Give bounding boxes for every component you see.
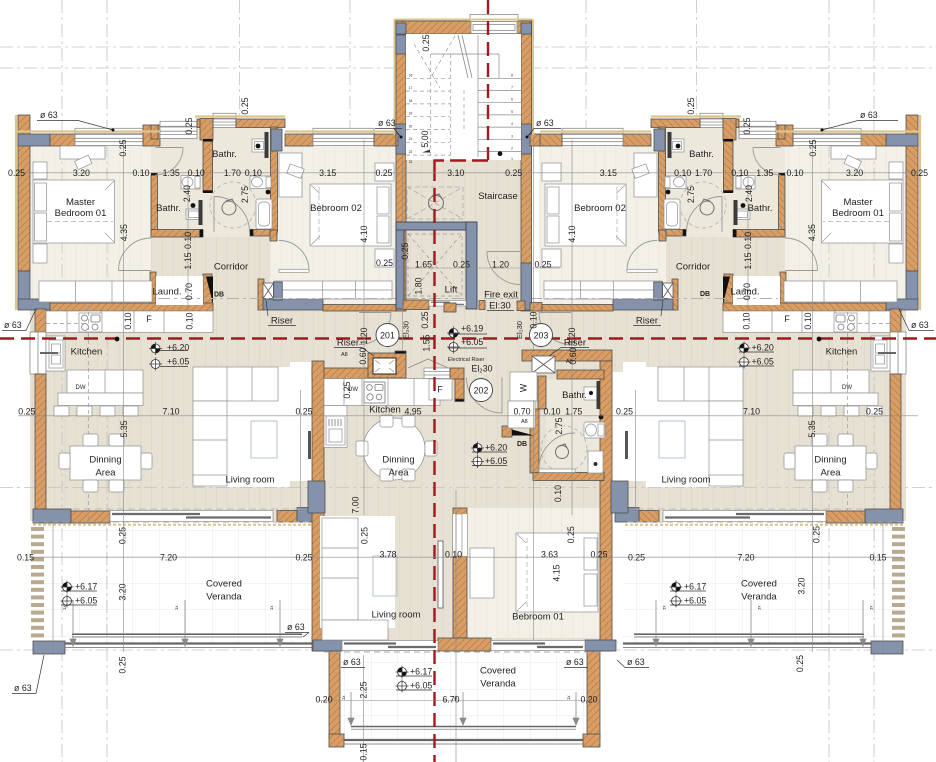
svg-text:7.20: 7.20 (737, 553, 754, 563)
svg-text:2.75: 2.75 (686, 186, 696, 203)
svg-text:+6.05: +6.05 (410, 681, 432, 691)
svg-text:17: 17 (409, 86, 413, 90)
svg-text:2: 2 (511, 147, 513, 151)
svg-text:+6.05: +6.05 (167, 357, 189, 367)
svg-text:1.20: 1.20 (492, 260, 509, 270)
svg-text:0.25: 0.25 (240, 97, 250, 114)
svg-text:+6.17: +6.17 (684, 582, 706, 592)
svg-text:Kitchen: Kitchen (71, 347, 103, 358)
svg-text:1.70: 1.70 (224, 168, 241, 178)
svg-text:0.25: 0.25 (8, 168, 25, 178)
svg-text:18: 18 (409, 99, 413, 103)
svg-text:El₂30: El₂30 (402, 321, 411, 339)
svg-text:1.35: 1.35 (756, 168, 773, 178)
svg-text:1.70: 1.70 (695, 168, 712, 178)
svg-text:Veranda: Veranda (480, 679, 516, 690)
svg-text:20: 20 (409, 124, 413, 128)
svg-text:F: F (784, 314, 790, 324)
svg-text:Bedroom 01: Bedroom 01 (55, 208, 107, 219)
svg-text:Kitchen: Kitchen (369, 405, 401, 416)
svg-text:8: 8 (511, 74, 513, 78)
svg-text:1.75: 1.75 (565, 407, 582, 417)
svg-text:1.65: 1.65 (415, 260, 432, 270)
svg-text:Area: Area (95, 468, 116, 479)
svg-text:0.10: 0.10 (529, 311, 539, 328)
svg-text:+6.17: +6.17 (75, 582, 97, 592)
svg-text:+6.05: +6.05 (485, 456, 507, 466)
svg-text:Corridor: Corridor (214, 262, 248, 273)
svg-text:+6.05: +6.05 (752, 357, 774, 367)
svg-text:Master: Master (843, 197, 872, 208)
svg-text:1.55: 1.55 (422, 334, 432, 351)
svg-text:DB: DB (214, 292, 224, 299)
svg-text:3.15: 3.15 (319, 168, 336, 178)
svg-text:5.35: 5.35 (807, 420, 817, 437)
svg-text:23: 23 (409, 160, 413, 164)
svg-text:0.25: 0.25 (342, 381, 352, 398)
svg-text:Kitchen: Kitchen (826, 347, 858, 358)
svg-text:3.63: 3.63 (541, 550, 558, 560)
svg-text:0.70: 0.70 (742, 283, 752, 300)
svg-text:Lift: Lift (445, 285, 458, 296)
svg-text:1: 1 (511, 157, 513, 161)
svg-text:Dinning: Dinning (814, 455, 846, 466)
svg-text:0.25: 0.25 (566, 526, 576, 543)
svg-text:16: 16 (409, 74, 413, 78)
svg-text:3.10: 3.10 (447, 168, 464, 178)
svg-text:0.25: 0.25 (911, 168, 928, 178)
svg-text:Dinning: Dinning (89, 455, 121, 466)
svg-text:3.78: 3.78 (379, 550, 396, 560)
svg-text:0.10: 0.10 (188, 168, 205, 178)
svg-text:Area: Area (388, 468, 409, 479)
svg-text:1.20: 1.20 (359, 327, 369, 344)
svg-text:+6.20: +6.20 (167, 343, 189, 353)
svg-text:0.25: 0.25 (184, 117, 194, 134)
svg-text:3.20: 3.20 (846, 168, 863, 178)
svg-text:5.35: 5.35 (119, 420, 129, 437)
svg-text:19: 19 (409, 112, 413, 116)
svg-text:DW: DW (76, 385, 86, 391)
svg-text:Living room: Living room (661, 475, 710, 486)
svg-text:2.75: 2.75 (554, 417, 564, 434)
svg-text:Staircase: Staircase (478, 191, 518, 202)
svg-text:0.25: 0.25 (375, 168, 392, 178)
svg-text:0.25: 0.25 (505, 168, 522, 178)
svg-text:0.10: 0.10 (553, 485, 563, 502)
svg-text:2.40: 2.40 (744, 185, 754, 202)
svg-text:4.35: 4.35 (807, 224, 817, 241)
svg-text:0.10: 0.10 (803, 312, 813, 329)
svg-text:Riser: Riser (337, 338, 359, 349)
svg-text:+6.05: +6.05 (684, 596, 706, 606)
svg-text:0.10: 0.10 (731, 168, 748, 178)
svg-text:Electrical Riser: Electrical Riser (448, 357, 485, 363)
svg-text:4.15: 4.15 (552, 564, 562, 581)
svg-text:Master: Master (66, 197, 95, 208)
svg-text:Bedroom 01: Bedroom 01 (832, 208, 884, 219)
svg-text:5.00: 5.00 (420, 130, 430, 147)
svg-text:Covered: Covered (480, 666, 516, 677)
svg-text:0.25: 0.25 (453, 260, 470, 270)
svg-text:3: 3 (511, 134, 513, 138)
svg-text:1.20: 1.20 (567, 327, 577, 344)
svg-text:1.80: 1.80 (414, 277, 424, 294)
svg-text:ø 63: ø 63 (378, 118, 396, 128)
svg-text:Veranda: Veranda (741, 592, 777, 603)
svg-text:7.10: 7.10 (743, 407, 760, 417)
svg-text:Veranda: Veranda (206, 592, 242, 603)
svg-text:+6.20: +6.20 (752, 343, 774, 353)
svg-text:ø 63: ø 63 (536, 118, 554, 128)
svg-text:ø 63: ø 63 (627, 657, 645, 667)
svg-text:0.25: 0.25 (400, 242, 410, 259)
svg-text:Covered: Covered (206, 579, 242, 590)
svg-text:ø 63: ø 63 (14, 683, 32, 693)
svg-text:Corridor: Corridor (676, 262, 710, 273)
svg-text:0.25: 0.25 (118, 656, 128, 673)
svg-text:W: W (519, 383, 529, 392)
svg-text:ø 63: ø 63 (860, 110, 878, 120)
svg-text:3.20: 3.20 (73, 168, 90, 178)
svg-text:F: F (437, 385, 443, 395)
svg-text:3.15: 3.15 (600, 168, 617, 178)
svg-text:0.20: 0.20 (580, 695, 597, 705)
svg-text:Bathr.: Bathr. (562, 390, 587, 401)
svg-text:ø 63: ø 63 (911, 320, 929, 330)
svg-text:0.25: 0.25 (421, 34, 431, 51)
svg-text:4.95: 4.95 (404, 407, 421, 417)
svg-text:7.20: 7.20 (160, 553, 177, 563)
svg-text:0.60: 0.60 (568, 347, 578, 364)
svg-text:0.25: 0.25 (795, 655, 805, 672)
svg-text:4.10: 4.10 (567, 225, 577, 242)
svg-text:0.10: 0.10 (445, 550, 462, 560)
svg-text:Fire exit: Fire exit (484, 290, 518, 301)
svg-text:1.15: 1.15 (183, 252, 193, 269)
svg-text:A8: A8 (521, 419, 528, 425)
svg-text:0.25: 0.25 (118, 527, 128, 544)
svg-text:El₂30: El₂30 (471, 364, 492, 374)
svg-text:201: 201 (380, 331, 395, 341)
svg-text:0.20: 0.20 (315, 695, 332, 705)
svg-text:0.25: 0.25 (376, 258, 393, 268)
svg-text:0.25: 0.25 (420, 311, 430, 328)
svg-text:4.35: 4.35 (119, 224, 129, 241)
svg-text:22: 22 (409, 150, 413, 154)
svg-text:7: 7 (511, 86, 513, 90)
svg-text:2.25: 2.25 (359, 681, 369, 698)
svg-text:0.25: 0.25 (18, 407, 35, 417)
svg-text:0.15: 0.15 (359, 743, 369, 760)
svg-text:0.25: 0.25 (808, 139, 818, 156)
svg-text:202: 202 (474, 386, 489, 396)
svg-text:Bathr.: Bathr. (748, 203, 773, 214)
svg-text:0.10: 0.10 (123, 312, 133, 329)
svg-text:0.25: 0.25 (628, 553, 645, 563)
svg-text:0.10: 0.10 (786, 168, 803, 178)
svg-text:0.10: 0.10 (183, 232, 193, 249)
svg-text:4: 4 (511, 122, 513, 126)
svg-text:6.70: 6.70 (442, 695, 459, 705)
svg-text:Living room: Living room (371, 610, 420, 621)
svg-text:0.25: 0.25 (360, 527, 370, 544)
svg-text:0.25: 0.25 (590, 550, 607, 560)
svg-text:+6.17: +6.17 (410, 667, 432, 677)
svg-text:Bebroom 02: Bebroom 02 (574, 203, 626, 214)
svg-text:0.60: 0.60 (358, 347, 368, 364)
svg-text:0.25: 0.25 (866, 407, 883, 417)
svg-text:2.75: 2.75 (240, 186, 250, 203)
svg-text:ø 63: ø 63 (4, 320, 22, 330)
svg-text:1.35: 1.35 (163, 168, 180, 178)
svg-text:1.15: 1.15 (743, 252, 753, 269)
svg-text:Bathr.: Bathr. (156, 203, 181, 214)
svg-text:Laund.: Laund. (152, 287, 181, 298)
svg-text:0.10: 0.10 (742, 312, 752, 329)
svg-text:0.10: 0.10 (743, 232, 753, 249)
svg-text:+6.05: +6.05 (461, 337, 483, 347)
svg-text:4.10: 4.10 (359, 225, 369, 242)
svg-text:ø 63: ø 63 (566, 657, 584, 667)
svg-text:+6.20: +6.20 (485, 443, 507, 453)
svg-text:0.10: 0.10 (543, 407, 560, 417)
svg-text:0.25: 0.25 (686, 97, 696, 114)
svg-text:Dinning: Dinning (382, 455, 414, 466)
svg-text:Riser: Riser (636, 316, 658, 327)
svg-text:0.70: 0.70 (184, 283, 194, 300)
svg-text:3.20: 3.20 (118, 583, 128, 600)
svg-text:Bebroom 01: Bebroom 01 (512, 612, 564, 623)
svg-text:0.70: 0.70 (513, 407, 530, 417)
svg-text:ø 63: ø 63 (40, 110, 58, 120)
svg-text:6: 6 (511, 98, 513, 102)
svg-text:21: 21 (409, 137, 413, 141)
svg-text:Riser: Riser (271, 316, 293, 327)
svg-text:0.10: 0.10 (674, 168, 691, 178)
svg-text:0.25: 0.25 (118, 139, 128, 156)
svg-text:F: F (146, 314, 152, 324)
svg-text:0.10: 0.10 (245, 168, 262, 178)
svg-text:0.25: 0.25 (295, 553, 312, 563)
svg-text:+6.05: +6.05 (75, 596, 97, 606)
svg-text:DB: DB (517, 441, 527, 448)
svg-text:DB: DB (700, 291, 710, 298)
svg-text:Living room: Living room (225, 475, 274, 486)
svg-text:7.00: 7.00 (351, 496, 361, 513)
svg-text:203: 203 (534, 331, 549, 341)
svg-text:0.10: 0.10 (185, 312, 195, 329)
svg-text:Covered: Covered (741, 579, 777, 590)
svg-text:0.25: 0.25 (616, 407, 633, 417)
svg-text:El:30: El:30 (489, 301, 511, 312)
svg-text:5: 5 (511, 110, 513, 114)
svg-text:ø 63: ø 63 (343, 657, 361, 667)
svg-text:3.20: 3.20 (797, 577, 807, 594)
svg-text:Bathr.: Bathr. (689, 149, 714, 160)
svg-text:ø 63: ø 63 (287, 622, 305, 632)
svg-text:Bebroom 02: Bebroom 02 (310, 203, 362, 214)
svg-text:+6.19: +6.19 (461, 324, 483, 334)
svg-text:0.25: 0.25 (534, 260, 551, 270)
svg-text:A8: A8 (341, 352, 348, 358)
svg-text:0.10: 0.10 (132, 168, 149, 178)
svg-text:2.40: 2.40 (182, 185, 192, 202)
svg-text:0.25: 0.25 (812, 526, 822, 543)
svg-text:0.15: 0.15 (869, 553, 886, 563)
svg-text:Area: Area (820, 468, 841, 479)
svg-text:DW: DW (842, 385, 852, 391)
svg-text:Bathr.: Bathr. (212, 149, 237, 160)
svg-text:0.25: 0.25 (742, 117, 752, 134)
svg-text:El₂30: El₂30 (515, 321, 524, 339)
svg-text:0.15: 0.15 (17, 553, 34, 563)
svg-text:0.25: 0.25 (295, 407, 312, 417)
svg-text:7.10: 7.10 (162, 407, 179, 417)
